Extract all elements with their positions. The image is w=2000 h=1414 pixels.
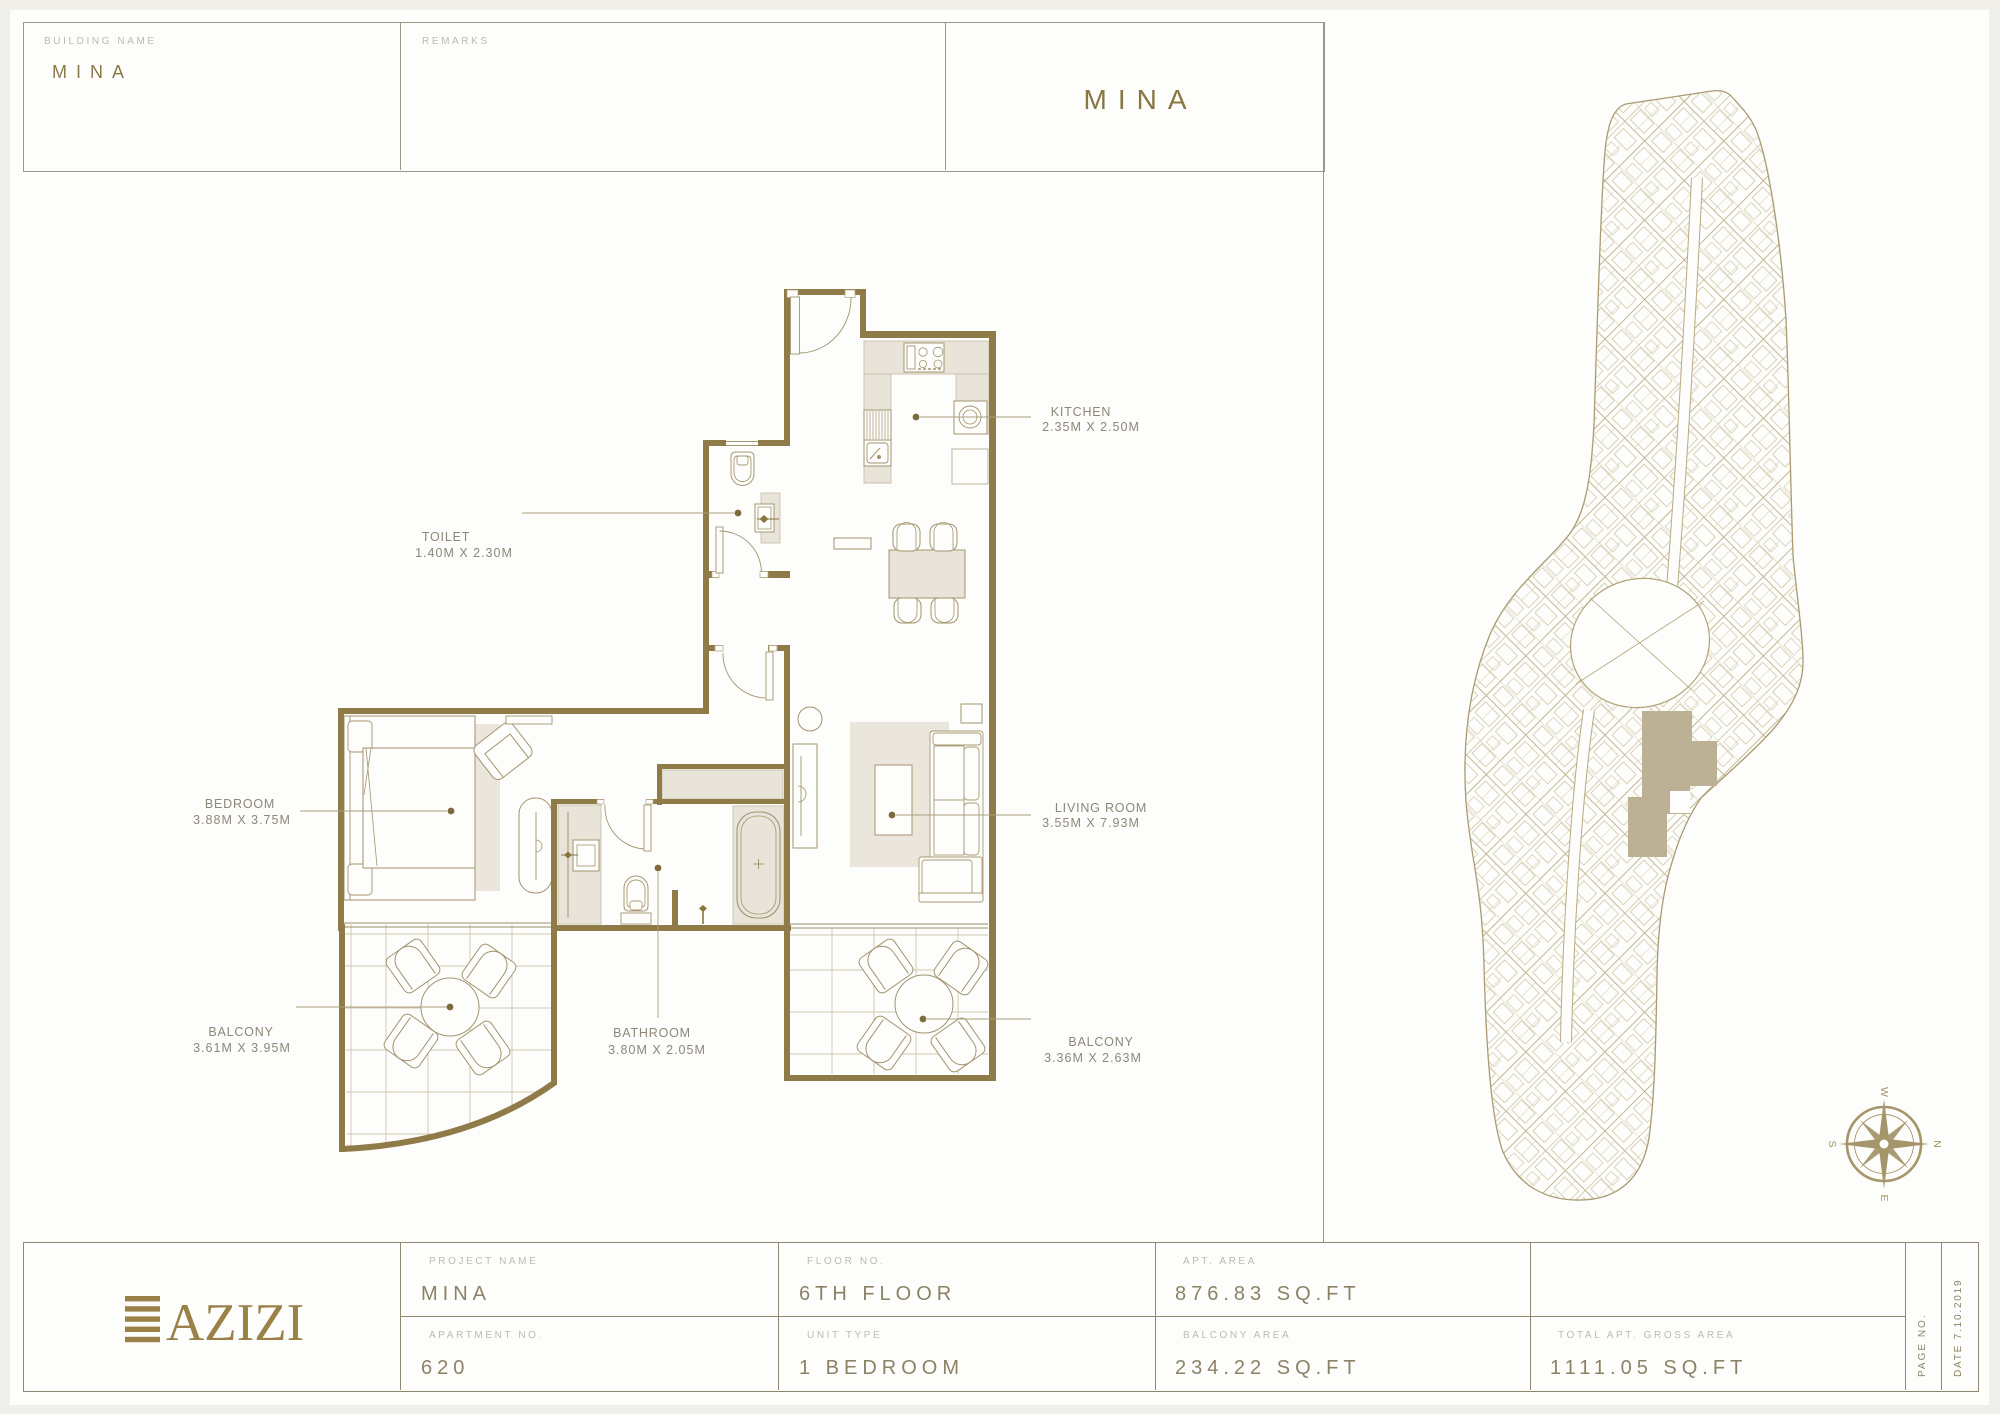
svg-text:S: S [1826,1140,1838,1147]
svg-text:AZIZI: AZIZI [166,1295,304,1345]
svg-text:N: N [1931,1140,1943,1148]
svg-text:E: E [1878,1194,1890,1201]
svg-text:W: W [1878,1087,1890,1097]
